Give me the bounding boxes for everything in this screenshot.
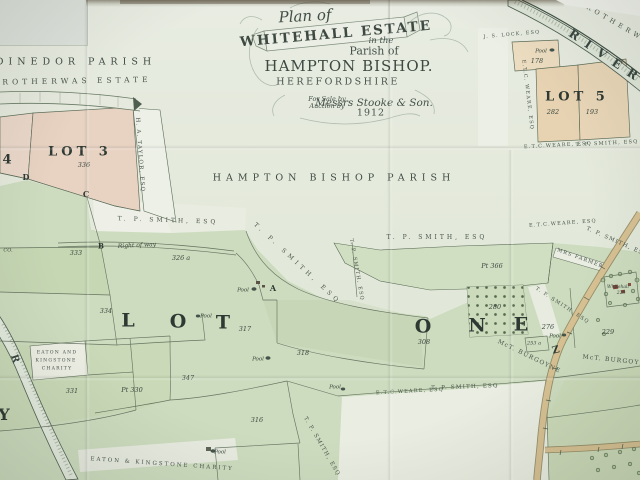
point-marker-b: B bbox=[98, 243, 104, 250]
owner-label: H. A. TAYLOR, ESQ bbox=[134, 117, 145, 192]
owner-label: T. P. SMITH, ESQ bbox=[118, 216, 219, 226]
pool-label: Pool bbox=[535, 49, 547, 55]
lot-3-label: LOT 3 bbox=[48, 146, 112, 159]
lot-one-letter: L bbox=[121, 312, 134, 331]
owner-label: T. P. SMITH, ESQ bbox=[387, 235, 488, 241]
parcel-number: 317 bbox=[239, 326, 251, 333]
owner-label: T. P. SMITH, ESQ bbox=[348, 239, 364, 302]
parcel-number: 308 bbox=[418, 339, 430, 346]
owner-label: T. P. SMITH, ESQ bbox=[585, 227, 640, 259]
owner-label: T. P. SMITH, ESQ bbox=[252, 222, 341, 306]
parcel-number: Pt 366 bbox=[481, 263, 502, 270]
whitehall-label: Whitehall bbox=[607, 286, 629, 291]
lot-one-letter: N bbox=[468, 317, 485, 336]
pool-label: Pool bbox=[214, 450, 226, 456]
parcel-number: 253 a bbox=[527, 342, 541, 347]
owner-label: J. S. LOCK, ESQ bbox=[483, 31, 540, 41]
parcel-number: 276 bbox=[542, 324, 554, 331]
parcel-number: 331 bbox=[66, 388, 78, 395]
dinedor-parish-label: DINEDOR PARISH bbox=[0, 57, 156, 67]
parcel-number: 333 bbox=[70, 250, 82, 257]
parcel-number: 228 bbox=[617, 292, 626, 297]
owner-label: T. P. SMITH, ESQ bbox=[575, 140, 638, 148]
parcel-number: 326 a bbox=[172, 255, 190, 262]
parcel-number: 280 bbox=[489, 304, 501, 311]
parcel-number: 334 bbox=[100, 308, 112, 315]
parcel-number: 336 bbox=[78, 162, 90, 169]
letter-marker-z: Z bbox=[551, 345, 561, 357]
parcel-number: 347 bbox=[182, 375, 194, 382]
point-marker-a: A bbox=[270, 284, 276, 292]
owner-label: T. P. SMITH, ESQ bbox=[431, 384, 499, 392]
photo-top-edge bbox=[120, 0, 370, 4]
parcel-number: 193 bbox=[586, 109, 598, 116]
letter-fragment-y: Y bbox=[0, 407, 10, 423]
owner-label: T. P. SMITH, ESQ bbox=[534, 287, 590, 326]
parcel-number: 318 bbox=[297, 350, 309, 357]
owner-label: T. P. SMITH, ESQ bbox=[302, 416, 340, 477]
point-marker-c: C bbox=[83, 190, 89, 198]
parcel-number: 282 bbox=[547, 109, 559, 116]
owner-label: McT. BURGOYNE bbox=[582, 354, 640, 367]
pool-label: Pool bbox=[200, 314, 212, 320]
parcel-number: Pt 330 bbox=[121, 387, 142, 394]
right-of-way-label: Right of way bbox=[118, 242, 157, 250]
pool-label: Pool bbox=[329, 385, 341, 391]
owner-label: MRS FARMER bbox=[556, 248, 604, 269]
parcel-number: 316 bbox=[251, 417, 263, 424]
estate-map-photo: DINEDOR PARISHROTHERWAS ESTATEHAMPTON BI… bbox=[0, 0, 640, 480]
parcel-number: 229 bbox=[602, 329, 614, 336]
charity-owner-label: EATON AND bbox=[37, 352, 78, 357]
hampton-bishop-parish-label: HAMPTON BISHOP PARISH bbox=[213, 173, 456, 183]
lot-one-letter: O bbox=[415, 318, 432, 337]
lot-one-letter: T bbox=[216, 314, 230, 333]
rotherwas-estate-label: ROTHERWAS ESTATE bbox=[2, 76, 151, 86]
river-name-label: RIVER bbox=[567, 27, 640, 87]
lot-5-label: LOT 5 bbox=[545, 91, 609, 104]
pool-label: Pool bbox=[252, 357, 264, 363]
lot-4-number: 4 bbox=[2, 154, 15, 167]
lot-one-letter: E bbox=[514, 316, 528, 335]
river-letter: R bbox=[8, 354, 20, 365]
pool-label: Pool bbox=[549, 334, 561, 340]
parcel-number: 178 bbox=[531, 58, 543, 65]
charity-owner-label: EATON & KINGSTONE CHARITY bbox=[90, 457, 234, 473]
text-fragment: CO. bbox=[3, 249, 12, 254]
pool-label: Pool bbox=[237, 288, 249, 294]
charity-owner-label: CHARITY bbox=[42, 368, 73, 373]
map-labels-layer: DINEDOR PARISHROTHERWAS ESTATEHAMPTON BI… bbox=[0, 0, 640, 480]
point-marker-d: D bbox=[23, 173, 30, 181]
charity-owner-label: KINGSTONE bbox=[35, 360, 76, 365]
owner-label: E.T.C. WEARE, ESQ bbox=[520, 60, 534, 131]
lot-one-letter: O bbox=[170, 313, 187, 332]
